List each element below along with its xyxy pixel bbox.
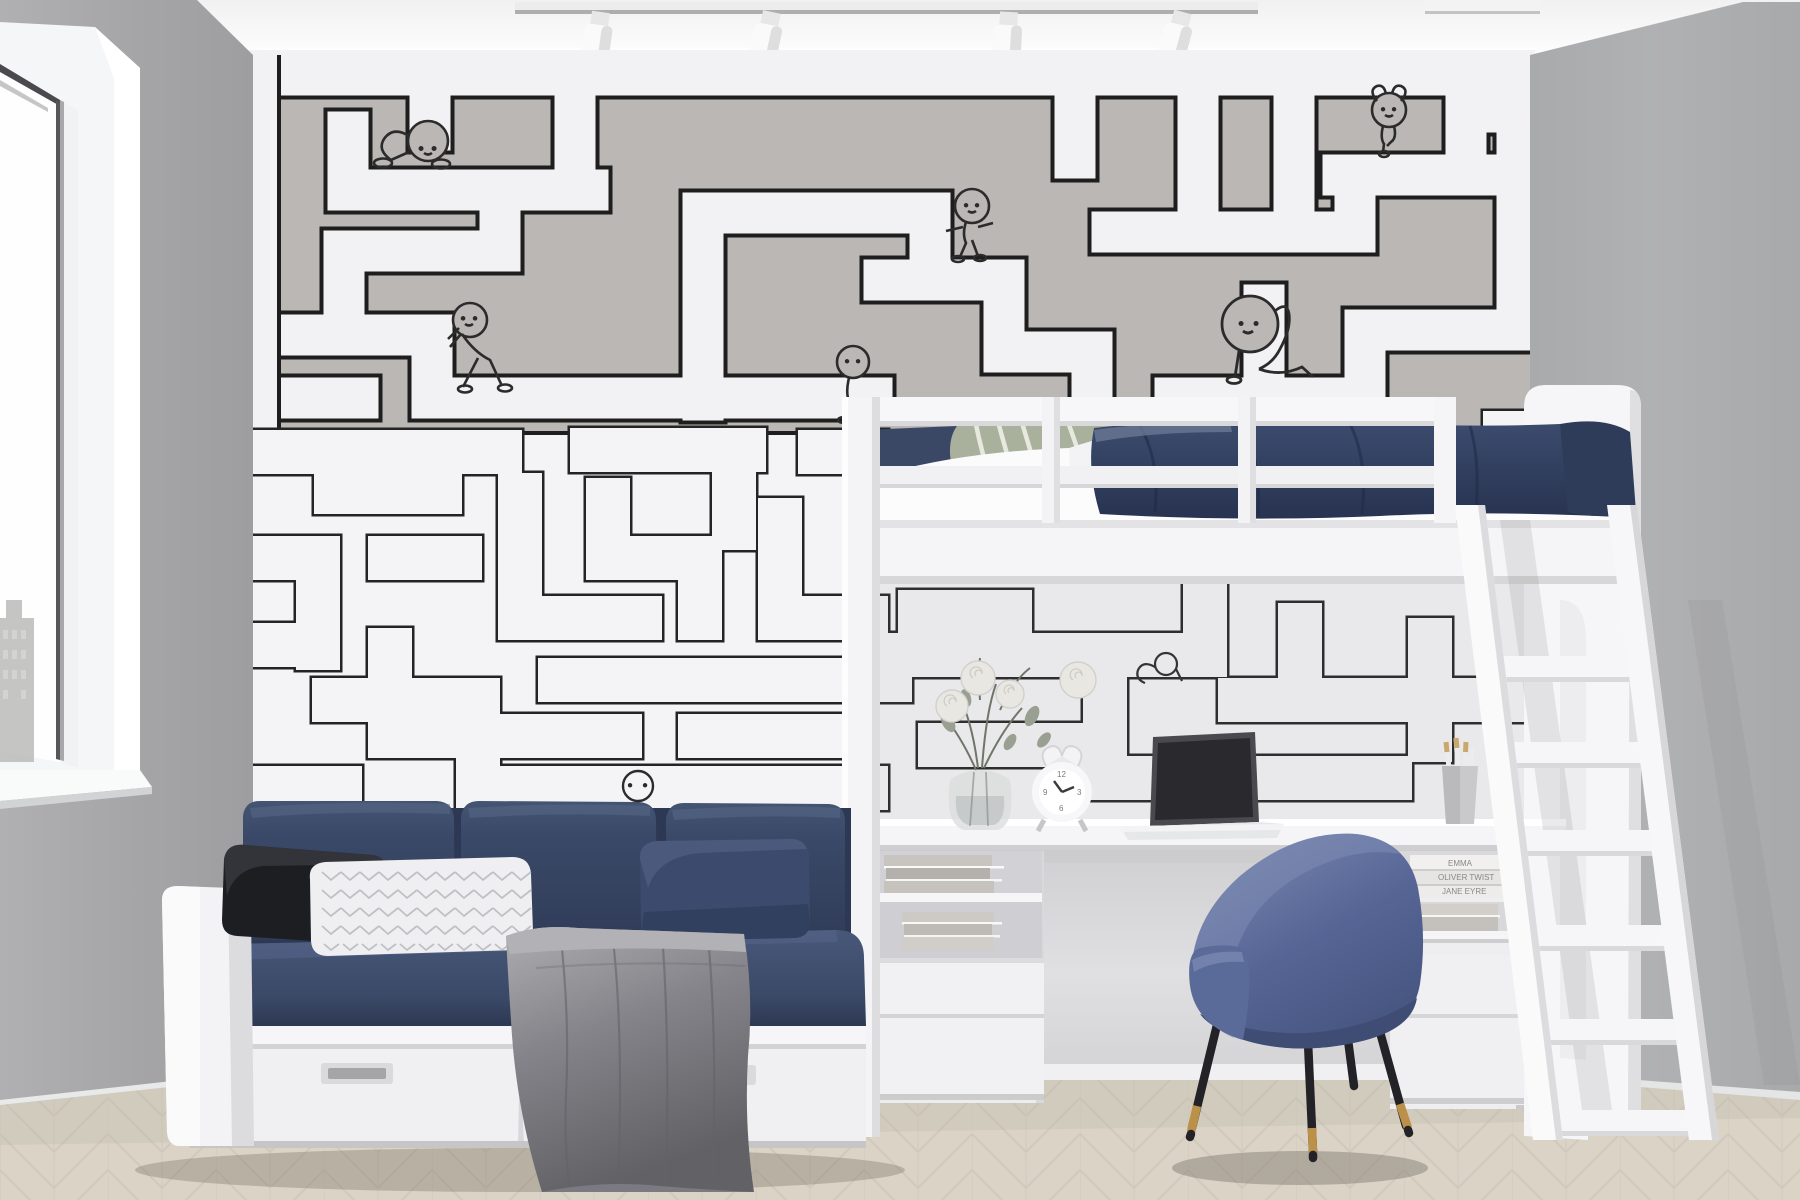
svg-text:6: 6 bbox=[1059, 804, 1064, 813]
svg-text:9: 9 bbox=[1043, 788, 1048, 797]
svg-text:JANE EYRE: JANE EYRE bbox=[1442, 887, 1486, 896]
svg-text:OLIVER TWIST: OLIVER TWIST bbox=[1438, 873, 1494, 882]
svg-text:EMMA: EMMA bbox=[1448, 859, 1473, 868]
svg-text:12: 12 bbox=[1057, 770, 1066, 779]
svg-text:3: 3 bbox=[1077, 788, 1082, 797]
